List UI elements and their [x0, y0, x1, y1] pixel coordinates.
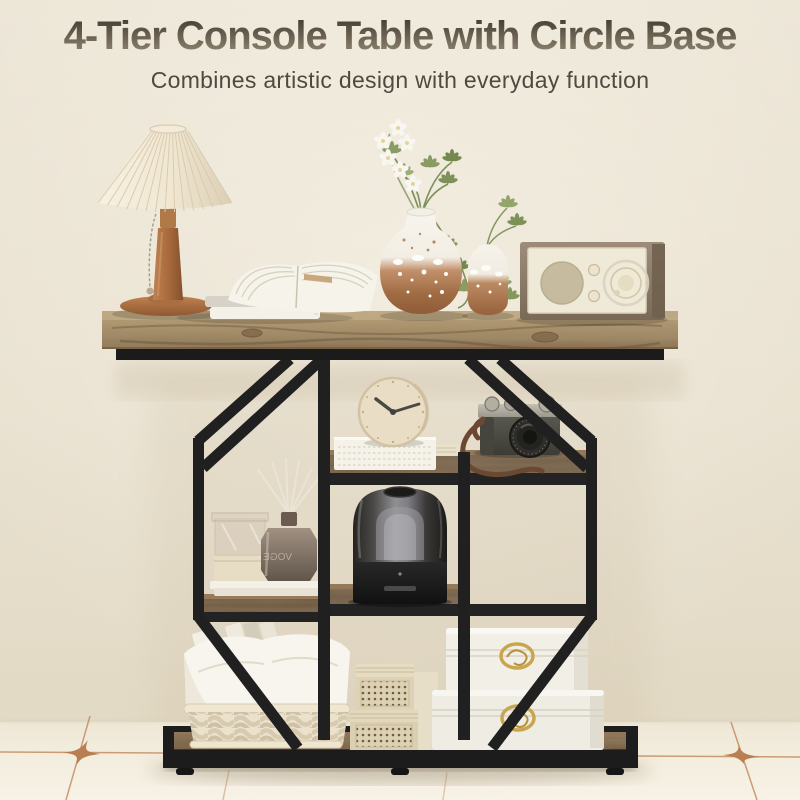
wall: [0, 0, 800, 745]
smoked-glass-speaker: [348, 487, 452, 607]
radio-speaker-grille: [541, 262, 583, 304]
radio-dial: [604, 261, 648, 305]
page-subtitle: Combines artistic design with everyday f…: [0, 67, 800, 94]
product-showcase-image: VOGE: [0, 0, 800, 800]
diffuser-label: VOGE: [263, 552, 292, 563]
desk-clock: [359, 378, 427, 447]
glass-display-box: [212, 513, 268, 581]
shelf-book-stack: [210, 581, 330, 596]
vintage-radio: [516, 242, 668, 326]
bud-vase-body: [468, 244, 508, 315]
marketing-header: 4-Tier Console Table with Circle Base Co…: [0, 0, 800, 94]
radio-knob-bottom: [589, 291, 600, 302]
radio-knob-top: [589, 265, 600, 276]
left-shelf: [198, 594, 324, 622]
scene-illustration: VOGE: [0, 0, 800, 800]
perforated-gift-boxes: [350, 664, 438, 750]
page-title: 4-Tier Console Table with Circle Base: [0, 14, 800, 59]
base-front-lip: [163, 750, 638, 768]
